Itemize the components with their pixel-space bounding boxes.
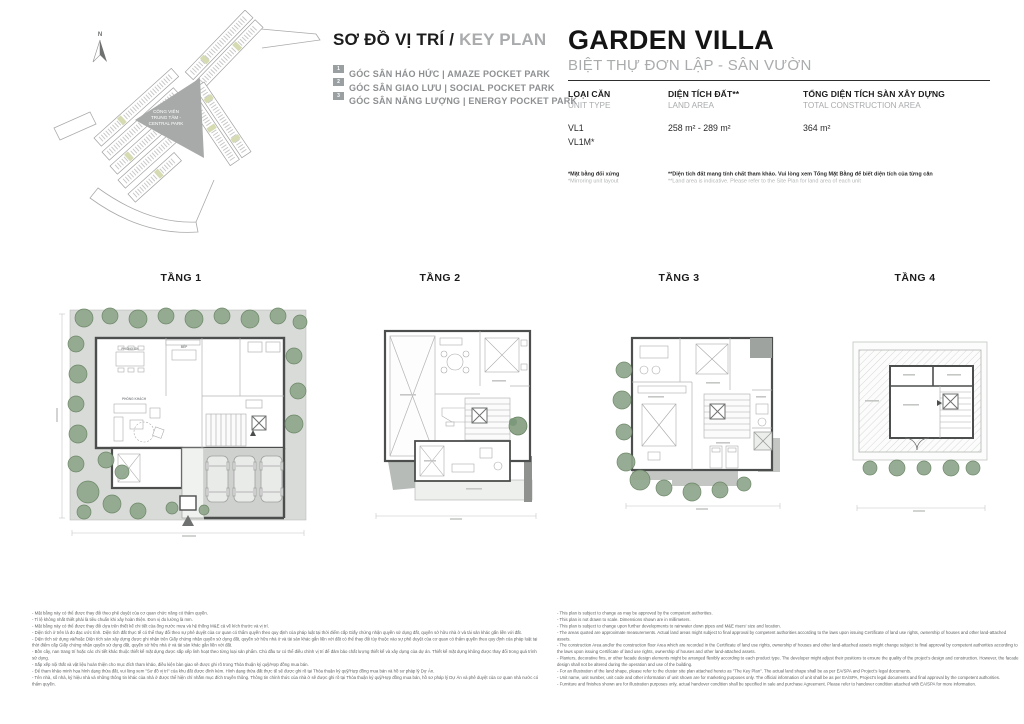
north-arrow-icon: N (93, 32, 107, 62)
brochure-page: N (0, 0, 1024, 724)
spec-label-vi: DIỆN TÍCH ĐẤT** (668, 89, 798, 99)
svg-text:CENTRAL PARK: CENTRAL PARK (149, 121, 185, 126)
footnote-en: *Mirroring unit layout (568, 178, 662, 184)
key-plan-legend: 1 GÓC SÂN HÁO HỨC | AMAZE POCKET PARK 2 … (333, 64, 553, 100)
disclaimer-line: - Unit name, unit number, unit code and … (557, 674, 1019, 680)
spec-value: 258 m² - 289 m² (668, 122, 798, 135)
page-subtitle: BIỆT THỰ ĐƠN LẬP - SÂN VƯỜN (568, 57, 990, 74)
footnote-vi: **Diện tích đất mang tính chất tham khảo… (668, 171, 993, 177)
svg-text:BẾP: BẾP (181, 344, 188, 349)
footnote-en: **Land area is indicative. Please refer … (668, 178, 993, 184)
disclaimer-line: - Tên nhà, số nhà, ký hiệu nhà và những … (32, 674, 542, 687)
dimension-lines (626, 503, 780, 510)
gate-box (180, 496, 196, 510)
shaft-gray (750, 338, 772, 358)
floor1-plan: PHÒNG ĂN BẾP PHÒNG KHÁCH (54, 296, 322, 540)
key-plan-title-en: KEY PLAN (459, 30, 546, 49)
spec-label-vi: LOẠI CĂN (568, 89, 664, 99)
legend-label: GÓC SÂN NĂNG LƯỢNG | ENERGY POCKET PARK (349, 96, 577, 106)
spec-value: 364 m² (803, 122, 990, 135)
spec-table: LOẠI CĂN UNIT TYPE VL1 VL1M* DIỆN TÍCH Đ… (568, 89, 990, 167)
svg-text:CÔNG VIÊN: CÔNG VIÊN (153, 107, 179, 114)
disclaimer-line: - Bồn cây, nan trang trí hoặc các chi ti… (32, 649, 542, 662)
legend-item: 2 GÓC SÂN GIAO LƯU | SOCIAL POCKET PARK (333, 78, 553, 87)
floor4-plan (845, 330, 995, 522)
bushes (863, 460, 980, 476)
floor-label-3: TẦNG 3 (659, 272, 700, 284)
spec-col-construction-area: TỔNG DIỆN TÍCH SÀN XÂY DỰNG TOTAL CONSTR… (803, 89, 990, 135)
stairs (206, 414, 246, 446)
key-plan-title: SƠ ĐỒ VỊ TRÍ / KEY PLAN (333, 30, 553, 50)
legend-number-badge: 3 (333, 92, 344, 100)
key-plan-title-vi: SƠ ĐỒ VỊ TRÍ / (333, 30, 454, 49)
floor-label-4: TẦNG 4 (895, 272, 936, 284)
skylight (754, 432, 772, 450)
floor-label-2: TẦNG 2 (420, 272, 461, 284)
plant (509, 417, 527, 435)
rooftop-rooms (890, 366, 973, 438)
spec-label-vi: TỔNG DIỆN TÍCH SÀN XÂY DỰNG (803, 89, 990, 99)
elevator (943, 394, 958, 409)
void-double-height (390, 336, 435, 456)
key-plan-map: N (38, 10, 328, 240)
balcony-gray (672, 470, 738, 486)
spec-label-en: TOTAL CONSTRUCTION AREA (803, 101, 990, 110)
elevator (710, 404, 725, 419)
footnote-vi: *Mặt bằng đối xứng (568, 171, 662, 177)
floor-label-1: TẦNG 1 (161, 272, 202, 284)
disclaimer-line: - Planters, decorative fins, or other fa… (557, 655, 1019, 668)
svg-text:PHÒNG ĂN: PHÒNG ĂN (121, 346, 139, 351)
legend-number-badge: 2 (333, 78, 344, 86)
spec-label-en: UNIT TYPE (568, 101, 664, 110)
legend-item: 1 GÓC SÂN HÁO HỨC | AMAZE POCKET PARK (333, 64, 553, 73)
svg-text:N: N (98, 32, 102, 38)
disclaimer-en: - This plan is subject to change as may … (557, 610, 1019, 724)
disclaimer-line: - Diện tích sử dụng và/hoặc Diện tích sà… (32, 636, 542, 649)
side-wall (524, 456, 532, 502)
spec-footnotes: *Mặt bằng đối xứng *Mirroring unit layou… (568, 171, 990, 201)
dimension-lines (376, 513, 536, 520)
svg-text:TRUNG TÂM -: TRUNG TÂM - (151, 114, 181, 120)
svg-text:PHÒNG KHÁCH: PHÒNG KHÁCH (122, 396, 147, 401)
floor2-plan (360, 316, 552, 524)
legend-item: 3 GÓC SÂN NĂNG LƯỢNG | ENERGY POCKET PAR… (333, 91, 553, 100)
elevator (472, 408, 487, 423)
disclaimer-vi: - Mặt bằng này có thể được thay đổi theo… (32, 610, 542, 724)
plot-strip-cluster-ne (185, 10, 263, 89)
spec-col-unit-type: LOẠI CĂN UNIT TYPE VL1 VL1M* (568, 89, 664, 148)
page-title: GARDEN VILLA (568, 26, 990, 54)
spec-col-land-area: DIỆN TÍCH ĐẤT** LAND AREA 258 m² - 289 m… (668, 89, 798, 135)
disclaimer-line: - The areas quoted are approximate measu… (557, 629, 1019, 642)
spec-value: VL1 VL1M* (568, 122, 664, 148)
floor3-plan (612, 320, 798, 514)
disclaimer-line: - The construction Area and/or the const… (557, 642, 1019, 655)
footnote-land-area: **Diện tích đất mang tính chất tham khảo… (668, 171, 1024, 195)
unit-header: GARDEN VILLA BIỆT THỰ ĐƠN LẬP - SÂN VƯỜN… (568, 26, 990, 201)
legend-number-badge: 1 (333, 65, 344, 73)
key-plan-header: SƠ ĐỒ VỊ TRÍ / KEY PLAN 1 GÓC SÂN HÁO HỨ… (333, 30, 553, 105)
disclaimer-line: - Furniture and finishes shown are for i… (557, 681, 1019, 687)
canopy (415, 480, 532, 500)
header-divider (568, 80, 990, 81)
dimension-lines (857, 505, 985, 512)
spec-label-en: LAND AREA (668, 101, 798, 110)
disclaimer-line: - Diện tích ở trên là đo đạc ước tính. D… (32, 629, 542, 635)
car-icons (206, 456, 283, 502)
